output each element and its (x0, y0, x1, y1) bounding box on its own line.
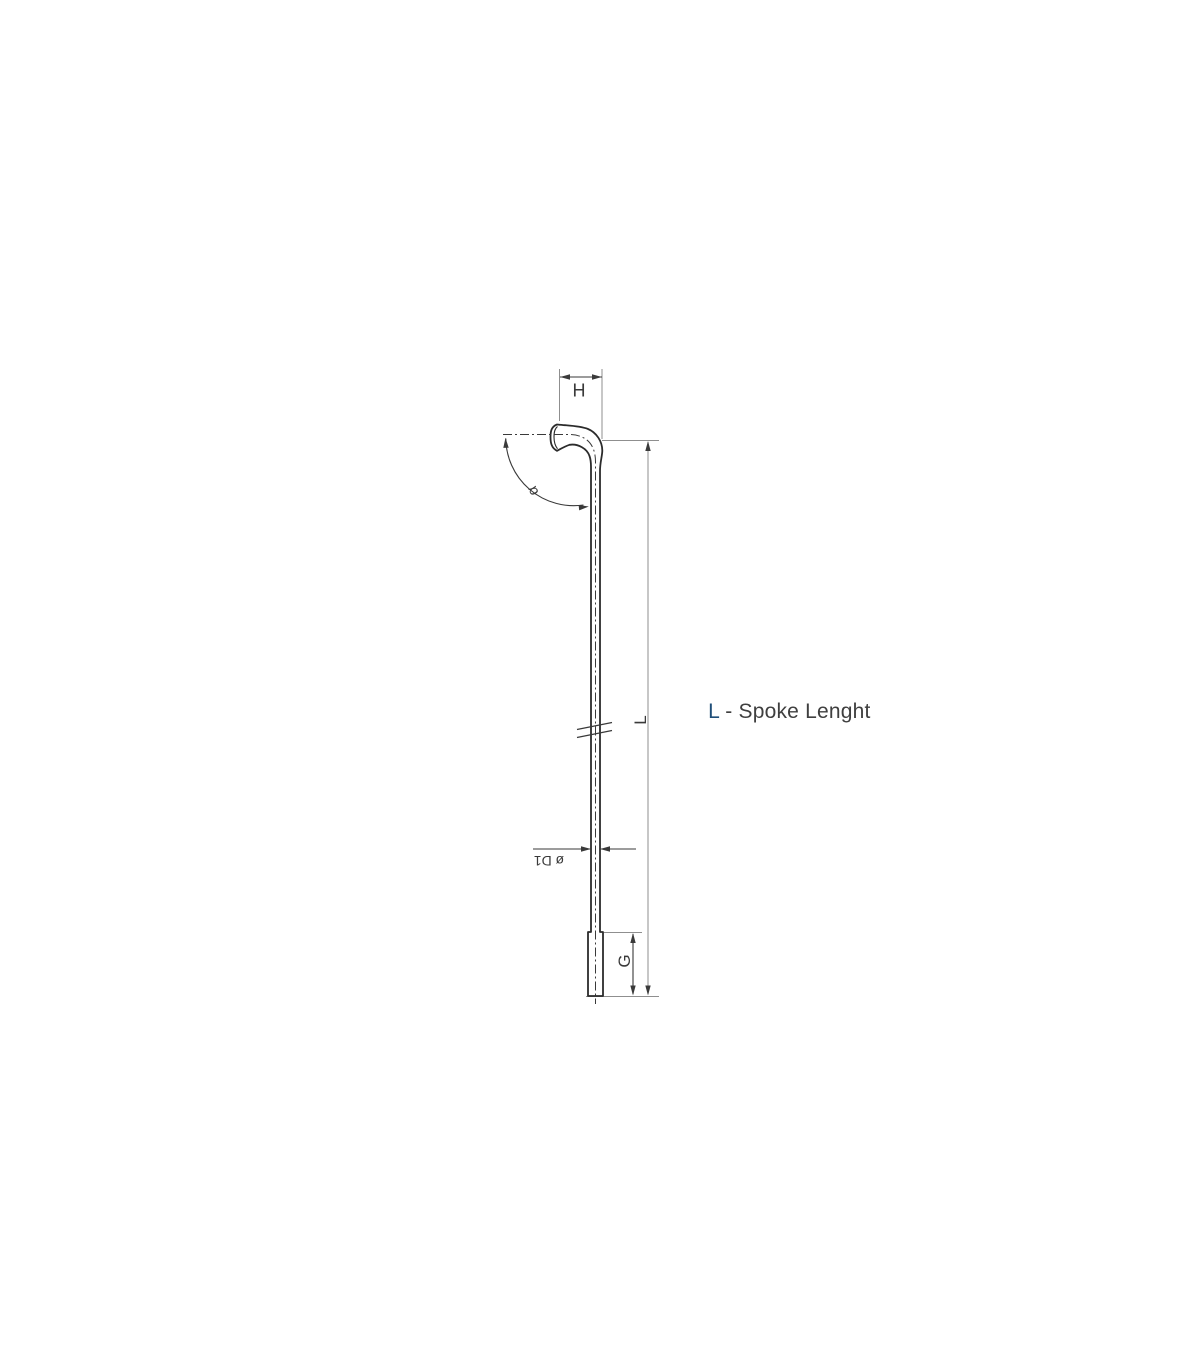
annotation-highlight: L (708, 700, 719, 723)
dimension-g: G (615, 933, 636, 996)
angle-arrow-bottom (579, 505, 589, 510)
dim-label-l: L (631, 715, 650, 724)
l-arrow-top (645, 441, 650, 451)
extension-lines (560, 369, 660, 997)
h-arrow-left (560, 374, 570, 379)
dimension-angle: α (503, 438, 589, 511)
angle-arc (506, 439, 584, 506)
annotation-text: - Spoke Lenght (719, 700, 870, 723)
l-arrow-bottom (645, 986, 650, 996)
d1-arrow-left (581, 846, 591, 851)
spoke-length-annotation: L - Spoke Lenght (684, 677, 871, 746)
page-canvas: H α L ø D1 G (0, 0, 1200, 1372)
centerline-path (503, 435, 596, 1005)
centerline (503, 435, 596, 1005)
h-arrow-right (592, 374, 602, 379)
dim-label-d1: ø D1 (534, 853, 565, 869)
dim-label-h: H (573, 381, 586, 401)
dim-label-g: G (615, 954, 634, 967)
d1-arrow-right (600, 846, 610, 851)
g-arrow-bottom (630, 986, 635, 996)
dimension-d1: ø D1 (533, 846, 636, 869)
spoke-diagram: H α L ø D1 G (0, 0, 1200, 1372)
dimension-h: H (560, 374, 602, 400)
g-arrow-top (630, 933, 635, 943)
